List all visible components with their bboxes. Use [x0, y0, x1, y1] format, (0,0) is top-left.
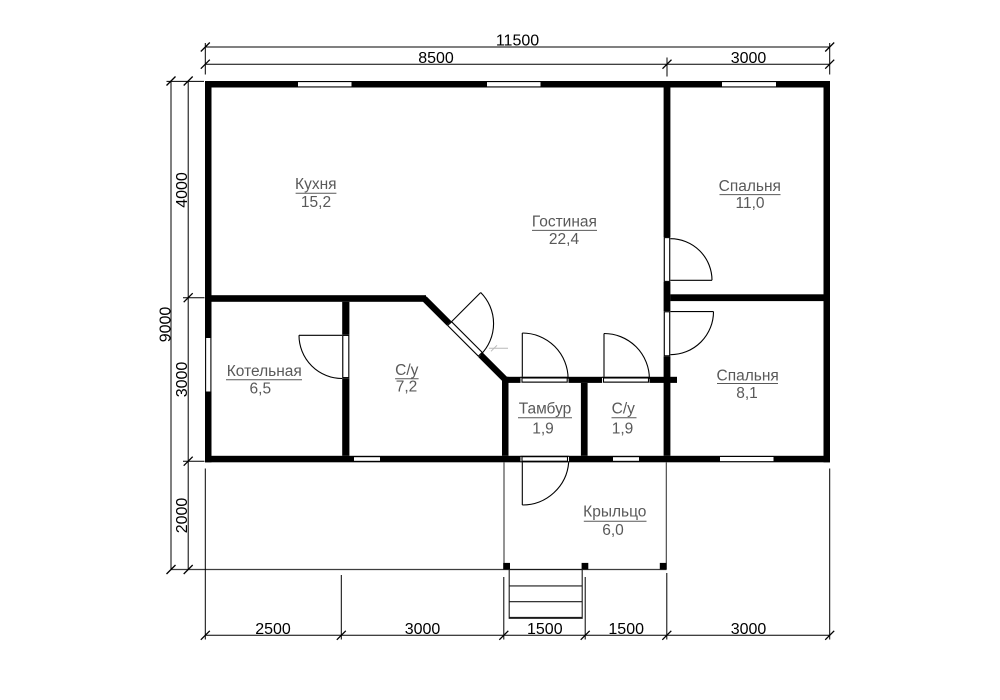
svg-text:6,0: 6,0 [602, 522, 624, 539]
svg-text:Кухня: Кухня [295, 176, 336, 193]
svg-text:11,0: 11,0 [735, 195, 764, 212]
svg-text:С/у: С/у [612, 401, 636, 418]
svg-text:1,9: 1,9 [532, 421, 554, 438]
svg-text:3000: 3000 [174, 362, 191, 398]
svg-text:9000: 9000 [157, 307, 174, 343]
svg-text:3000: 3000 [405, 621, 441, 638]
svg-text:1,9: 1,9 [612, 421, 634, 438]
svg-text:8500: 8500 [418, 50, 454, 67]
svg-text:Спальня: Спальня [717, 368, 779, 385]
svg-text:Котельная: Котельная [227, 363, 302, 380]
svg-text:8,1: 8,1 [736, 385, 758, 402]
svg-text:Гостиная: Гостиная [532, 213, 597, 230]
svg-text:11500: 11500 [496, 32, 539, 49]
svg-text:7,2: 7,2 [396, 379, 418, 396]
svg-text:2000: 2000 [174, 498, 191, 534]
svg-text:Тамбур: Тамбур [519, 401, 572, 418]
svg-text:22,4: 22,4 [549, 231, 580, 248]
svg-text:15,2: 15,2 [301, 194, 331, 211]
svg-text:6,5: 6,5 [250, 381, 272, 398]
svg-text:Крыльцо: Крыльцо [583, 504, 646, 521]
svg-text:1500: 1500 [527, 621, 563, 638]
svg-text:2500: 2500 [255, 621, 291, 638]
svg-text:С/у: С/у [395, 362, 419, 379]
svg-text:3000: 3000 [731, 50, 767, 67]
svg-text:Спальня: Спальня [719, 178, 781, 195]
svg-text:3000: 3000 [731, 621, 767, 638]
svg-text:4000: 4000 [174, 172, 191, 208]
svg-text:1500: 1500 [608, 621, 644, 638]
